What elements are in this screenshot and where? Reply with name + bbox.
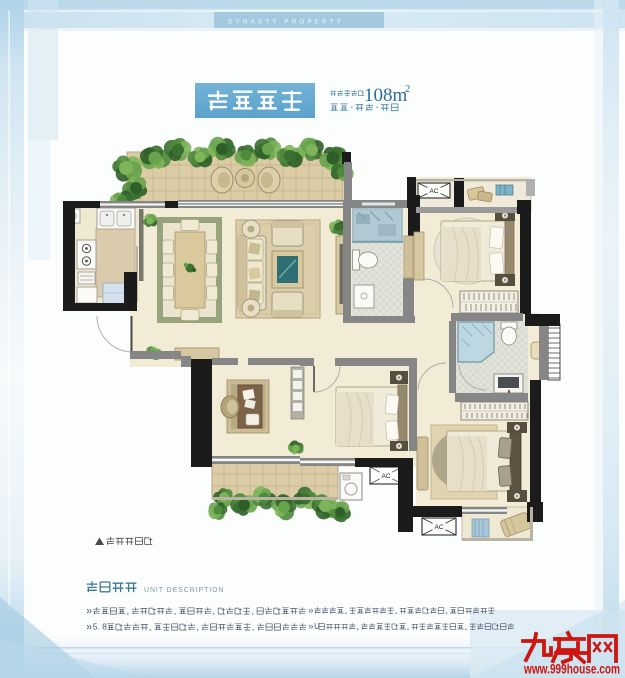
- svg-text:2: 2: [405, 84, 410, 95]
- svg-text:AC: AC: [429, 188, 438, 195]
- svg-text:8: 8: [102, 622, 107, 632]
- svg-text:108m: 108m: [364, 85, 408, 106]
- svg-text:UNIT DESCRIPTION: UNIT DESCRIPTION: [144, 587, 224, 594]
- svg-text:DYNASTY PROPERTY: DYNASTY PROPERTY: [228, 19, 344, 26]
- svg-text:.: .: [97, 622, 99, 632]
- svg-text:AC: AC: [434, 524, 443, 531]
- svg-text:www.999house.com: www.999house.com: [523, 662, 620, 677]
- svg-text:AC: AC: [381, 473, 390, 480]
